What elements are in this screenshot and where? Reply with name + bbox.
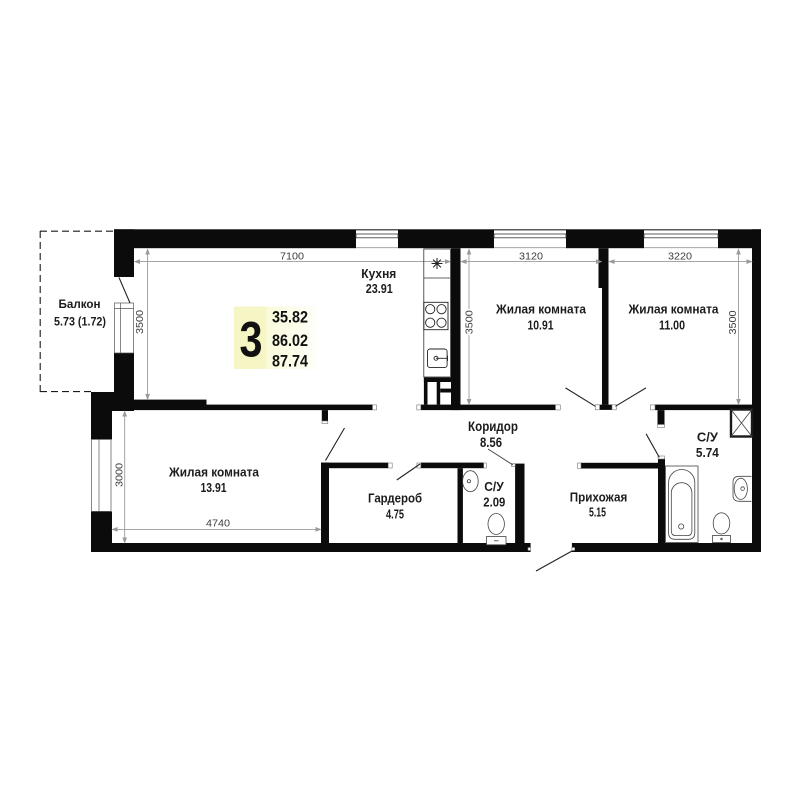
svg-text:35.82: 35.82 [272,308,308,327]
svg-text:86.02: 86.02 [272,331,308,350]
svg-text:11.00: 11.00 [659,318,685,332]
svg-text:3500: 3500 [728,310,739,334]
svg-text:Кухня: Кухня [361,267,396,281]
svg-text:Жилая комната: Жилая комната [168,466,260,480]
svg-text:13.91: 13.91 [201,481,227,495]
svg-text:87.74: 87.74 [272,351,308,370]
svg-text:Коридор: Коридор [468,419,518,434]
svg-text:С/У: С/У [484,480,504,494]
svg-text:3500: 3500 [135,310,146,334]
svg-text:5.73 (1.72): 5.73 (1.72) [54,315,106,329]
svg-text:С/У: С/У [697,431,718,445]
svg-text:Балкон: Балкон [59,297,101,311]
svg-text:7100: 7100 [280,251,304,262]
svg-text:3120: 3120 [519,251,543,262]
svg-text:2.09: 2.09 [483,496,505,510]
svg-text:4740: 4740 [206,518,230,529]
svg-text:3220: 3220 [668,251,692,262]
svg-text:8.56: 8.56 [480,435,502,450]
svg-text:3500: 3500 [465,310,476,334]
svg-text:10.91: 10.91 [528,318,554,332]
svg-text:Гардероб: Гардероб [368,492,422,506]
svg-text:3000: 3000 [115,463,126,487]
svg-text:4.75: 4.75 [386,508,404,522]
svg-text:Жилая комната: Жилая комната [495,302,587,316]
svg-text:Жилая комната: Жилая комната [628,302,720,316]
svg-text:5.74: 5.74 [696,446,719,460]
svg-text:3: 3 [240,312,263,368]
svg-text:Прихожая: Прихожая [570,491,628,505]
svg-text:23.91: 23.91 [366,282,393,296]
svg-text:5.15: 5.15 [589,506,606,520]
